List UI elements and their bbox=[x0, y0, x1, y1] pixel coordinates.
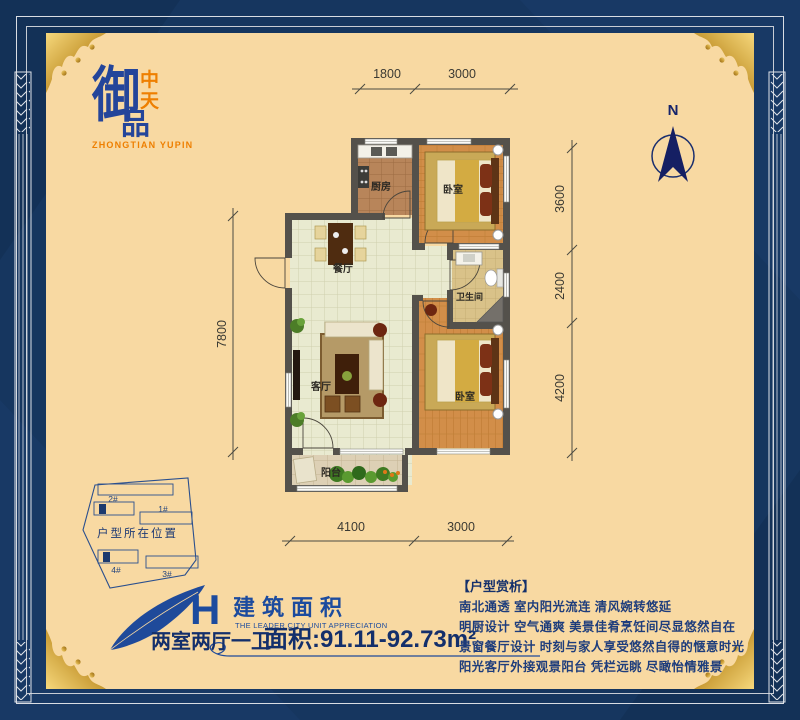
border-column-right bbox=[769, 72, 785, 702]
room-label-bedroom2: 卧室 bbox=[455, 390, 475, 403]
site-map-building-1: 1# bbox=[158, 504, 167, 514]
dim-right-4200: 4200 bbox=[553, 374, 567, 402]
analysis-line: 南北通透 室内阳光流连 清风婉转悠延 bbox=[459, 597, 672, 615]
site-map-building-3: 3# bbox=[162, 569, 171, 579]
unit-letter: H bbox=[190, 589, 220, 631]
dim-top-1800: 1800 bbox=[373, 67, 401, 81]
north-compass: N bbox=[646, 102, 700, 192]
hall-floor bbox=[405, 246, 452, 298]
dim-right-3600: 3600 bbox=[553, 185, 567, 213]
room-label-kitchen: 厨房 bbox=[371, 180, 391, 193]
room-label-balcony: 阳台 bbox=[321, 466, 341, 479]
room-label-bathroom: 卫生间 bbox=[456, 291, 483, 302]
unit-layout: 两室两厅一卫 bbox=[151, 632, 271, 652]
logo-romanized: ZHONGTIAN YUPIN bbox=[92, 140, 193, 150]
dim-right-2400: 2400 bbox=[553, 272, 567, 300]
site-map-caption: 户型所在位置 bbox=[97, 525, 178, 541]
room-label-bedroom1: 卧室 bbox=[443, 183, 463, 196]
title-building-area: 建筑面积 bbox=[233, 597, 349, 619]
analysis-heading: 【户型赏析】 bbox=[457, 576, 535, 595]
logo-character-pin: 品 bbox=[121, 111, 150, 140]
analysis-line: 明厨设计 空气通爽 美景佳肴烹饪间尽显悠然自在 bbox=[459, 617, 736, 635]
tv-cabinet-icon bbox=[293, 350, 300, 400]
dim-left-7800: 7800 bbox=[215, 320, 229, 348]
sofa-icon bbox=[321, 322, 387, 418]
bed-icon bbox=[425, 145, 503, 240]
dim-bottom-4100: 4100 bbox=[337, 520, 365, 534]
border-column-left bbox=[15, 72, 31, 702]
poster-page: { "brand": { "logo_main": "御", "logo_top… bbox=[0, 0, 800, 720]
brand-logo: 御 中 天 品 ZHONGTIAN YUPIN bbox=[92, 66, 222, 158]
north-arrow-icon bbox=[646, 120, 700, 190]
floor-plan: 厨房 卧室 餐厅 卫生间 客厅 卧室 阳台 bbox=[285, 138, 513, 494]
unit-area: 面积:91.11-92.73m² bbox=[264, 628, 476, 652]
site-map-building-2: 2# bbox=[108, 494, 117, 504]
north-label: N bbox=[646, 102, 700, 119]
dim-top-3000: 3000 bbox=[448, 67, 476, 81]
analysis-line: 景窗餐厅设计 时刻与家人享受悠然自得的惬意时光 bbox=[459, 637, 744, 655]
dim-bottom-3000: 3000 bbox=[447, 520, 475, 534]
site-map-building-4: 4# bbox=[111, 565, 120, 575]
room-label-dining: 餐厅 bbox=[332, 262, 353, 275]
floor-plan-drawing: 厨房 卧室 餐厅 卫生间 客厅 卧室 阳台 bbox=[285, 138, 513, 494]
room-label-living: 客厅 bbox=[310, 380, 331, 393]
logo-character-zhong: 中 bbox=[140, 71, 159, 90]
analysis-line: 阳光客厅外接观景阳台 凭栏远眺 尽瞰怡情雅景 bbox=[459, 657, 723, 675]
